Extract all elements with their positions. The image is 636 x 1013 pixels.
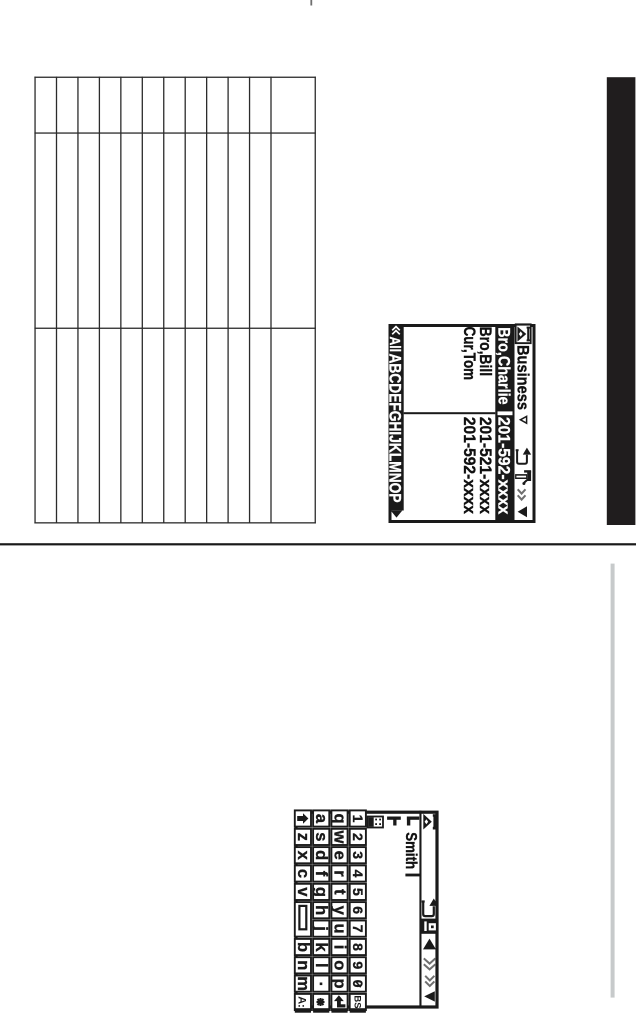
svg-text:h: h	[312, 905, 330, 915]
svg-text:a: a	[312, 814, 330, 824]
svg-text:l: l	[312, 963, 330, 968]
svg-text:9: 9	[350, 961, 366, 969]
svg-text:8: 8	[350, 943, 366, 951]
svg-text:BS: BS	[351, 995, 362, 1008]
svg-text:s: s	[312, 832, 330, 841]
svg-text:z: z	[294, 833, 312, 841]
svg-text:5: 5	[350, 888, 366, 896]
svg-text:1: 1	[350, 815, 366, 823]
svg-text:6: 6	[350, 906, 366, 914]
svg-text:x: x	[294, 851, 312, 861]
svg-text:Bro,Bill: Bro,Bill	[476, 327, 495, 377]
svg-text:4: 4	[350, 870, 366, 878]
svg-text:p: p	[330, 979, 348, 989]
svg-text:d: d	[312, 850, 330, 860]
svg-text:2: 2	[350, 833, 366, 841]
svg-text:All: All	[386, 337, 403, 353]
svg-text:Bro,Charlie: Bro,Charlie	[494, 327, 513, 405]
svg-text:q: q	[330, 813, 348, 823]
svg-text:ABCDEFGHIJKLMNOP: ABCDEFGHIJKLMNOP	[386, 354, 405, 503]
svg-text:3: 3	[350, 851, 366, 859]
svg-text:g: g	[312, 887, 330, 897]
svg-text:i: i	[330, 945, 348, 950]
svg-text:b: b	[294, 942, 312, 952]
svg-text:f: f	[312, 871, 330, 877]
svg-text:m: m	[294, 976, 312, 991]
svg-text:n: n	[294, 960, 312, 970]
svg-text:Business: Business	[513, 345, 532, 410]
svg-text:A:: A:	[295, 996, 307, 1008]
svg-text:Smith: Smith	[402, 832, 419, 869]
svg-text:k: k	[312, 942, 330, 952]
svg-text:w: w	[330, 829, 348, 843]
svg-text:v: v	[294, 887, 312, 897]
svg-text:c: c	[294, 869, 312, 878]
svg-text:r: r	[330, 870, 348, 877]
svg-text:j: j	[312, 925, 330, 931]
svg-text:201-592-xxxx: 201-592-xxxx	[494, 417, 513, 515]
svg-text:y: y	[330, 906, 348, 916]
svg-text:t: t	[330, 889, 348, 895]
svg-text:7: 7	[350, 925, 366, 933]
svg-text:u: u	[330, 924, 348, 934]
svg-text:o: o	[330, 960, 348, 970]
svg-text:201-521-xxxx: 201-521-xxxx	[476, 417, 495, 514]
svg-text:e: e	[330, 851, 348, 860]
